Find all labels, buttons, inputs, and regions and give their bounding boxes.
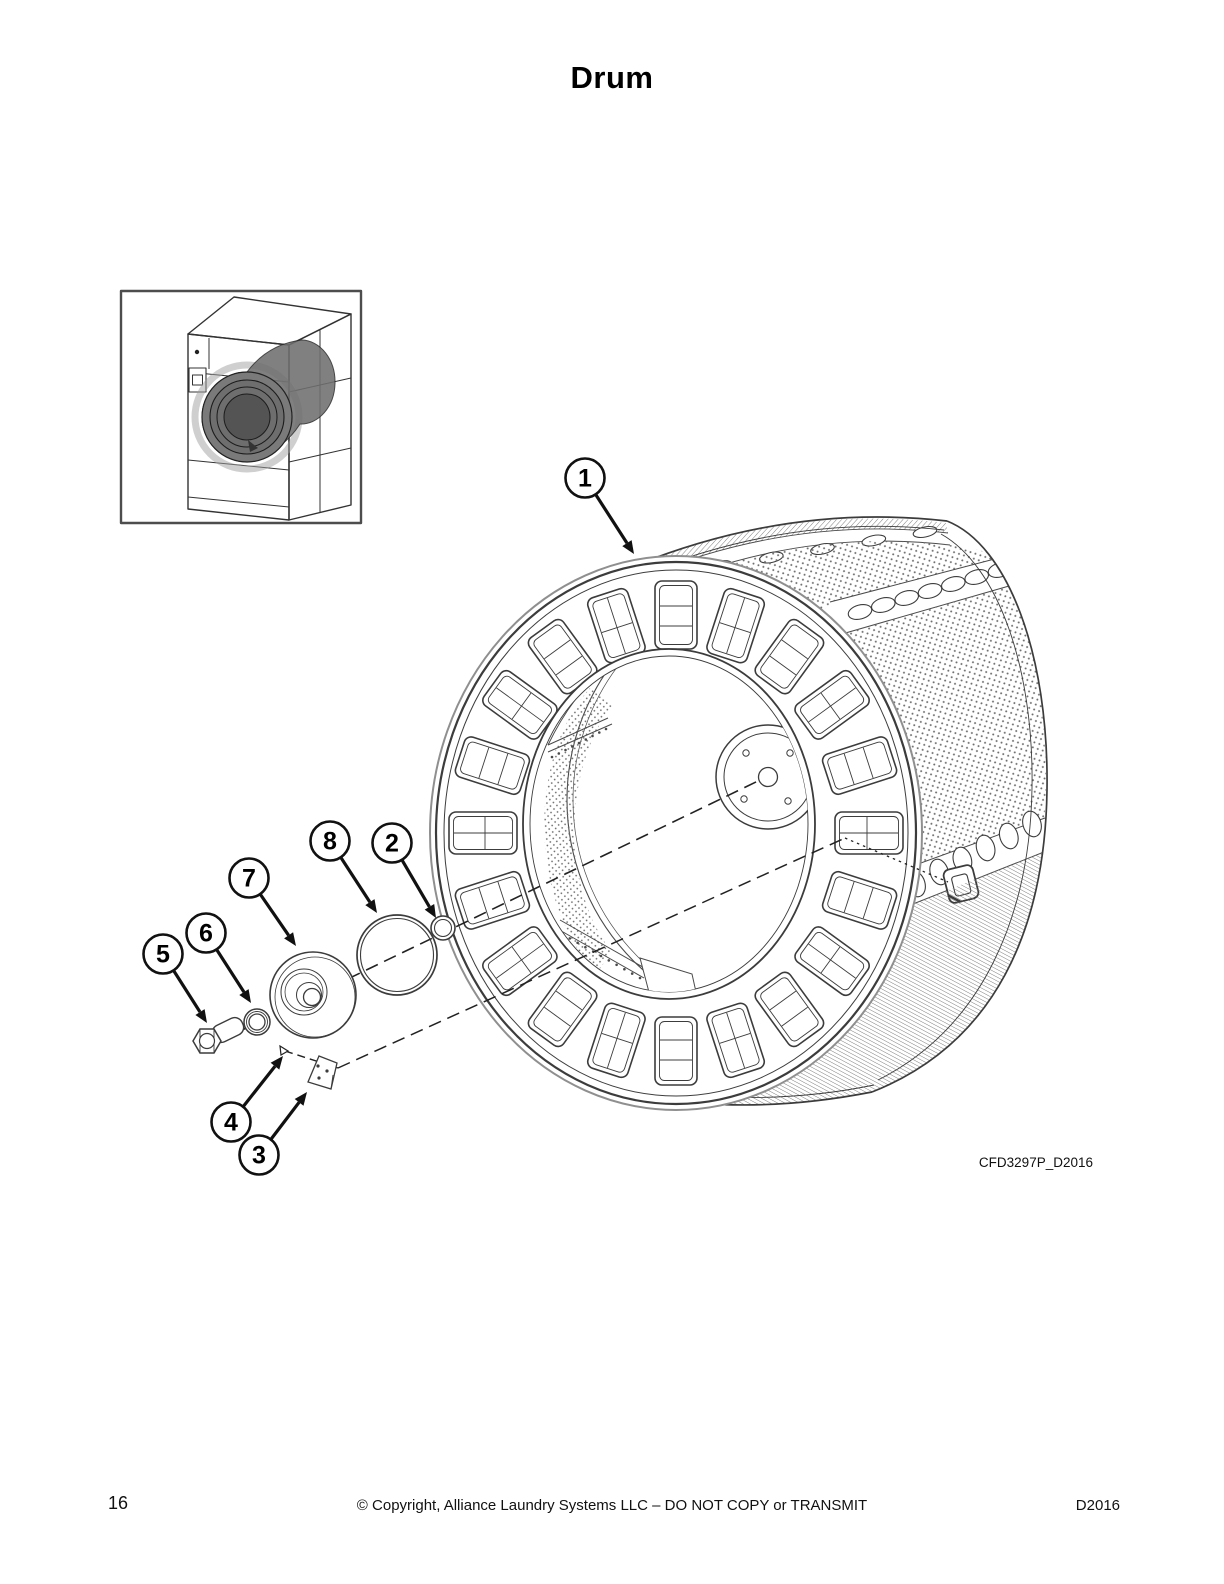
part-bolt bbox=[193, 1015, 246, 1053]
callout-2: 2 bbox=[373, 824, 437, 919]
drum-vent bbox=[655, 581, 697, 649]
cabinet-indicator-dot bbox=[195, 350, 199, 354]
diagram-canvas: 12345678 bbox=[0, 0, 1224, 1584]
callout-number: 1 bbox=[578, 465, 592, 493]
rivet-dot bbox=[598, 731, 601, 734]
drum-front-face bbox=[430, 556, 922, 1110]
callout-4: 4 bbox=[212, 1056, 284, 1142]
callout-1: 1 bbox=[566, 459, 635, 555]
callout-arrowhead bbox=[284, 932, 296, 946]
rivet-dot bbox=[600, 955, 603, 958]
drum-vent bbox=[449, 812, 517, 854]
rivet-dot bbox=[605, 728, 608, 731]
callout-number: 2 bbox=[385, 830, 399, 858]
rivet-dot bbox=[639, 977, 642, 980]
rivet-dot bbox=[558, 752, 561, 755]
rivet-dot bbox=[576, 942, 579, 945]
part-lock-washer bbox=[244, 1009, 270, 1035]
rivet-dot bbox=[551, 756, 554, 759]
footer-doc-code: D2016 bbox=[1076, 1497, 1120, 1514]
rivet-dot bbox=[578, 742, 581, 745]
rivet-dot bbox=[623, 968, 626, 971]
rivet-dot bbox=[608, 959, 611, 962]
part-trunnion-hub bbox=[270, 952, 356, 1038]
machine-thumbnail bbox=[121, 291, 361, 523]
rivet-dot bbox=[585, 738, 588, 741]
rivet-dot bbox=[591, 735, 594, 738]
exploded-parts bbox=[193, 915, 455, 1089]
figure-code: CFD3297P_D2016 bbox=[979, 1155, 1093, 1170]
drum-illustration: 12345678 bbox=[144, 459, 1050, 1175]
callout-number: 4 bbox=[224, 1109, 238, 1137]
rivet-dot bbox=[584, 946, 587, 949]
rivet-dot bbox=[564, 749, 567, 752]
footer-copyright: © Copyright, Alliance Laundry Systems LL… bbox=[0, 1497, 1224, 1514]
callout-number: 7 bbox=[242, 865, 256, 893]
callout-3: 3 bbox=[240, 1092, 308, 1175]
callout-number: 8 bbox=[323, 828, 337, 856]
rivet-dot bbox=[571, 745, 574, 748]
manual-page: Drum bbox=[0, 0, 1224, 1584]
callout-number: 6 bbox=[199, 920, 213, 948]
rivet-dot bbox=[615, 964, 618, 967]
part-seal-ring bbox=[357, 915, 437, 995]
hub-center-hole bbox=[759, 768, 778, 787]
drum-vent bbox=[655, 1017, 697, 1085]
rivet-dot bbox=[631, 972, 634, 975]
part-point-marker bbox=[280, 1046, 288, 1055]
callout-8: 8 bbox=[311, 822, 378, 914]
callout-number: 3 bbox=[252, 1142, 266, 1170]
callout-6: 6 bbox=[187, 914, 252, 1004]
callout-number: 5 bbox=[156, 941, 170, 969]
part-small-ring bbox=[431, 916, 455, 940]
callout-7: 7 bbox=[230, 859, 297, 947]
drum-vent bbox=[835, 812, 903, 854]
part-mount-plate bbox=[308, 1056, 337, 1089]
rivet-dot bbox=[569, 937, 572, 940]
